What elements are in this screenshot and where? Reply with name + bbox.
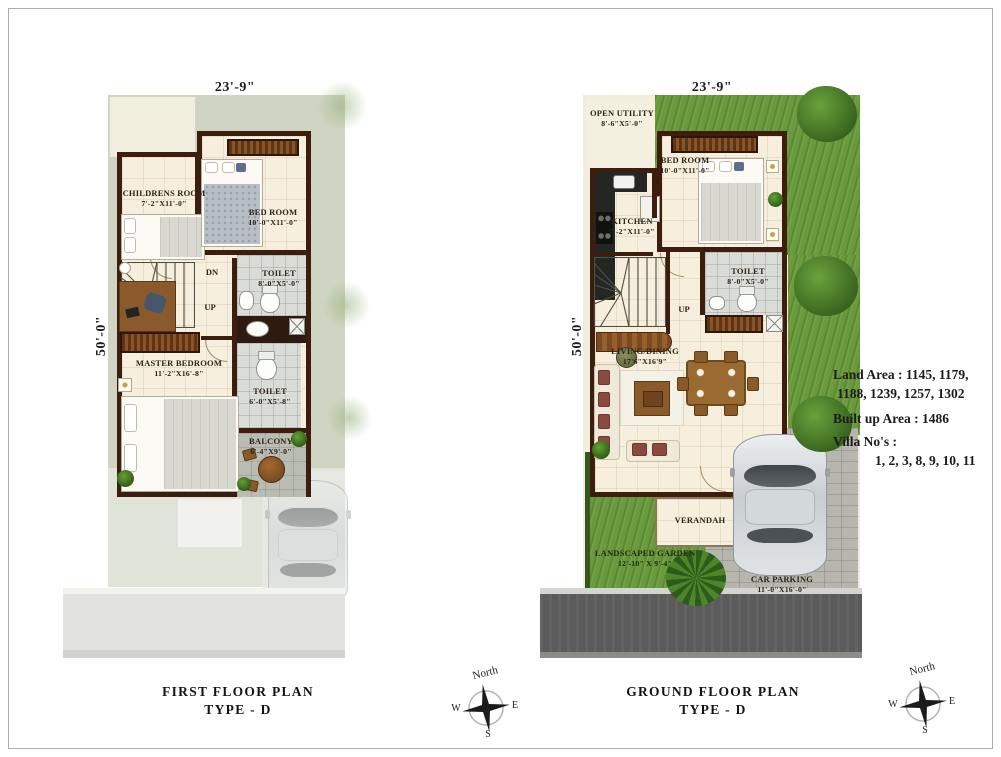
tree <box>794 256 858 316</box>
first-floor-width-dimension: 23'-9" <box>140 80 330 96</box>
wardrobe <box>227 139 299 156</box>
compass-east-label: E <box>512 700 518 711</box>
plant <box>237 477 251 491</box>
landscaped-garden-label: LANDSCAPED GARDEN 12'-10" X 9'-4" <box>588 548 702 569</box>
car-mirror <box>730 468 735 477</box>
car-roof <box>745 489 815 525</box>
compass-west-label: W <box>888 699 898 710</box>
land-area-line2: 1188, 1239, 1257, 1302 <box>837 385 993 404</box>
parked-car <box>733 434 827 576</box>
road-faded <box>63 594 345 652</box>
villa-numbers-label: Villa No's : <box>833 433 993 452</box>
room-size: 10'-0"X11'-0" <box>240 218 306 228</box>
plant <box>117 470 134 487</box>
room-name: CAR PARKING <box>715 574 849 585</box>
toilet-wc <box>256 357 277 380</box>
compass-west-label: W <box>451 703 461 714</box>
compass-south-label: S <box>485 729 491 738</box>
blanket <box>701 183 761 241</box>
childrens-room-label: CHILDRENS ROOM 7'-2"X11'-0" <box>121 188 207 209</box>
first-floor-title: FIRST FLOOR PLAN TYPE - D <box>148 683 328 719</box>
plan-title-line1: GROUND FLOOR PLAN <box>618 683 808 701</box>
room-size: 6'-0"X5'-8" <box>240 397 300 407</box>
wardrobe <box>671 136 758 153</box>
dining-chair <box>724 351 738 363</box>
living-dining-label: LIVING/DINING 17'6"X16'9" <box>598 346 692 367</box>
info-panel: Land Area : 1145, 1179, 1188, 1239, 1257… <box>833 366 993 470</box>
room-name: CHILDRENS ROOM <box>121 188 207 199</box>
room-size: 8'-0"X5'-0" <box>254 279 304 289</box>
staircase <box>594 257 666 327</box>
plan-title-line2: TYPE - D <box>618 701 808 719</box>
room-name: OPEN UTILITY <box>584 108 660 119</box>
vanity-basin <box>246 321 269 337</box>
cushion <box>598 392 610 407</box>
room-name: TOILET <box>254 268 304 279</box>
room-name: BED ROOM <box>240 207 306 218</box>
nightstand <box>766 160 779 173</box>
tree-faded <box>326 396 372 440</box>
wall <box>652 170 657 218</box>
pillow <box>124 218 136 234</box>
accent-pillow <box>236 163 246 172</box>
toilet-bottom-label: TOILET 6'-0"X5'-8" <box>240 386 300 407</box>
toilet-wc <box>260 291 280 313</box>
car-mirror <box>346 510 351 519</box>
cushion <box>632 443 647 456</box>
dining-chair <box>694 404 708 416</box>
dining-chair <box>724 404 738 416</box>
wall <box>201 336 232 340</box>
plan-title-line1: FIRST FLOOR PLAN <box>148 683 328 701</box>
dining-chair <box>747 377 759 391</box>
round-table <box>258 456 285 483</box>
car-rear-glass <box>747 528 813 544</box>
kitchen-sink <box>613 175 635 189</box>
plant <box>592 441 610 459</box>
dining-chair <box>694 351 708 363</box>
wall <box>595 252 653 256</box>
pillow <box>719 161 732 172</box>
wall <box>700 252 705 315</box>
compass-icon: North W E S <box>888 660 958 734</box>
room-name: VERANDAH <box>657 515 743 526</box>
master-bedroom-label: MASTER BEDROOM 11'-2"X16'-8" <box>127 358 231 379</box>
cushion <box>652 443 667 456</box>
room-size: 17'6"X16'9" <box>598 357 692 367</box>
bed-room-label: BED ROOM 10'-0"X11'-0" <box>240 207 306 228</box>
tree-faded <box>322 282 370 328</box>
room-name: BED ROOM <box>655 155 715 166</box>
pillow <box>222 162 235 173</box>
room-name: LANDSCAPED GARDEN <box>588 548 702 559</box>
car-mirror <box>825 468 830 477</box>
accent-pillow <box>734 162 744 171</box>
nightstand <box>766 228 779 241</box>
ground-floor-title: GROUND FLOOR PLAN TYPE - D <box>618 683 808 719</box>
first-floor-terrace-patch <box>110 97 195 157</box>
coffee-table <box>634 381 670 416</box>
cushion <box>598 370 610 385</box>
open-utility-label: OPEN UTILITY 8'-6"X5'-0" <box>584 108 660 129</box>
verandah-label: VERANDAH <box>657 515 743 526</box>
blanket <box>160 217 202 257</box>
pillow <box>124 237 136 253</box>
dining-chair <box>677 377 689 391</box>
floor-plan-sheet: 23'-9" 50'-0" DN UP C <box>0 0 1001 757</box>
room-size: 11'-2"X16'-8" <box>127 369 231 379</box>
bed-room-gf-label: BED ROOM 10'-0"X11'-0" <box>655 155 715 176</box>
stairs-up-label: UP <box>672 304 696 314</box>
car-parking-label: CAR PARKING 11'-0"X16'-0" <box>715 574 849 595</box>
room-name: LIVING/DINING <box>598 346 692 357</box>
room-size: 6'-4"X9'-0" <box>240 447 302 457</box>
first-floor-height-dimension: 50'-0" <box>94 306 110 366</box>
room-size: 12'-10" X 9'-4" <box>588 559 702 569</box>
master-bed <box>121 396 239 492</box>
compass-north-label: North <box>471 664 499 682</box>
compass-icon: North W E S <box>451 664 521 738</box>
ghost-sitout <box>178 499 242 547</box>
room-size: 10'-0"X11'-0" <box>655 166 715 176</box>
road-edge <box>63 650 345 658</box>
wash-basin <box>709 296 725 310</box>
pillow <box>124 444 137 472</box>
car-mirror <box>265 510 270 519</box>
toilet-top-label: TOILET 8'-0"X5'-0" <box>254 268 304 289</box>
room-size: 7'-2"X11'-0" <box>600 227 664 237</box>
compass-south-label: S <box>922 725 928 734</box>
road-edge <box>540 652 862 658</box>
car-windshield <box>744 465 815 486</box>
wall <box>666 252 670 334</box>
stool <box>119 262 131 274</box>
room-name: BALCONY <box>240 436 302 447</box>
cushion <box>598 414 610 429</box>
toilet-gf-label: TOILET 8'-0"X5'-0" <box>718 266 778 287</box>
wash-basin <box>239 291 254 310</box>
balcony-label: BALCONY 6'-4"X9'-0" <box>240 436 302 457</box>
blanket <box>164 399 236 489</box>
tray <box>643 391 663 407</box>
kitchen-label: KITCHEN 7'-2"X11'-0" <box>600 216 664 237</box>
nightstand <box>118 378 132 392</box>
wardrobe <box>705 315 763 333</box>
dining-table <box>686 360 746 406</box>
compass-east-label: E <box>949 696 955 707</box>
room-size: 11'-0"X16'-0" <box>715 585 849 595</box>
plant <box>768 192 783 207</box>
wardrobe <box>120 332 200 353</box>
plan-title-line2: TYPE - D <box>148 701 328 719</box>
stairs-down-label: DN <box>199 267 225 277</box>
built-up-area: Built up Area : 1486 <box>833 410 993 429</box>
room-name: TOILET <box>718 266 778 277</box>
room-name: KITCHEN <box>600 216 664 227</box>
car-rear-glass <box>280 563 336 577</box>
compass-north-label: North <box>908 660 936 678</box>
car-roof <box>278 529 337 561</box>
ground-floor-height-dimension: 50'-0" <box>570 306 586 366</box>
pillow <box>124 404 137 432</box>
stairs-up-label: UP <box>197 302 223 312</box>
duct-shaft <box>289 318 305 335</box>
pillow <box>205 162 218 173</box>
room-size: 8'-0"X5'-0" <box>718 277 778 287</box>
ground-floor-width-dimension: 23'-9" <box>617 80 807 96</box>
car-windshield <box>278 508 339 527</box>
room-name: TOILET <box>240 386 300 397</box>
villa-numbers: 1, 2, 3, 8, 9, 10, 11 <box>875 452 993 471</box>
room-name: MASTER BEDROOM <box>127 358 231 369</box>
duct-shaft <box>766 315 783 332</box>
toilet-wc <box>737 292 757 312</box>
room-size: 7'-2"X11'-0" <box>121 199 207 209</box>
land-area-line1: Land Area : 1145, 1179, <box>833 366 993 385</box>
room-size: 8'-6"X5'-0" <box>584 119 660 129</box>
